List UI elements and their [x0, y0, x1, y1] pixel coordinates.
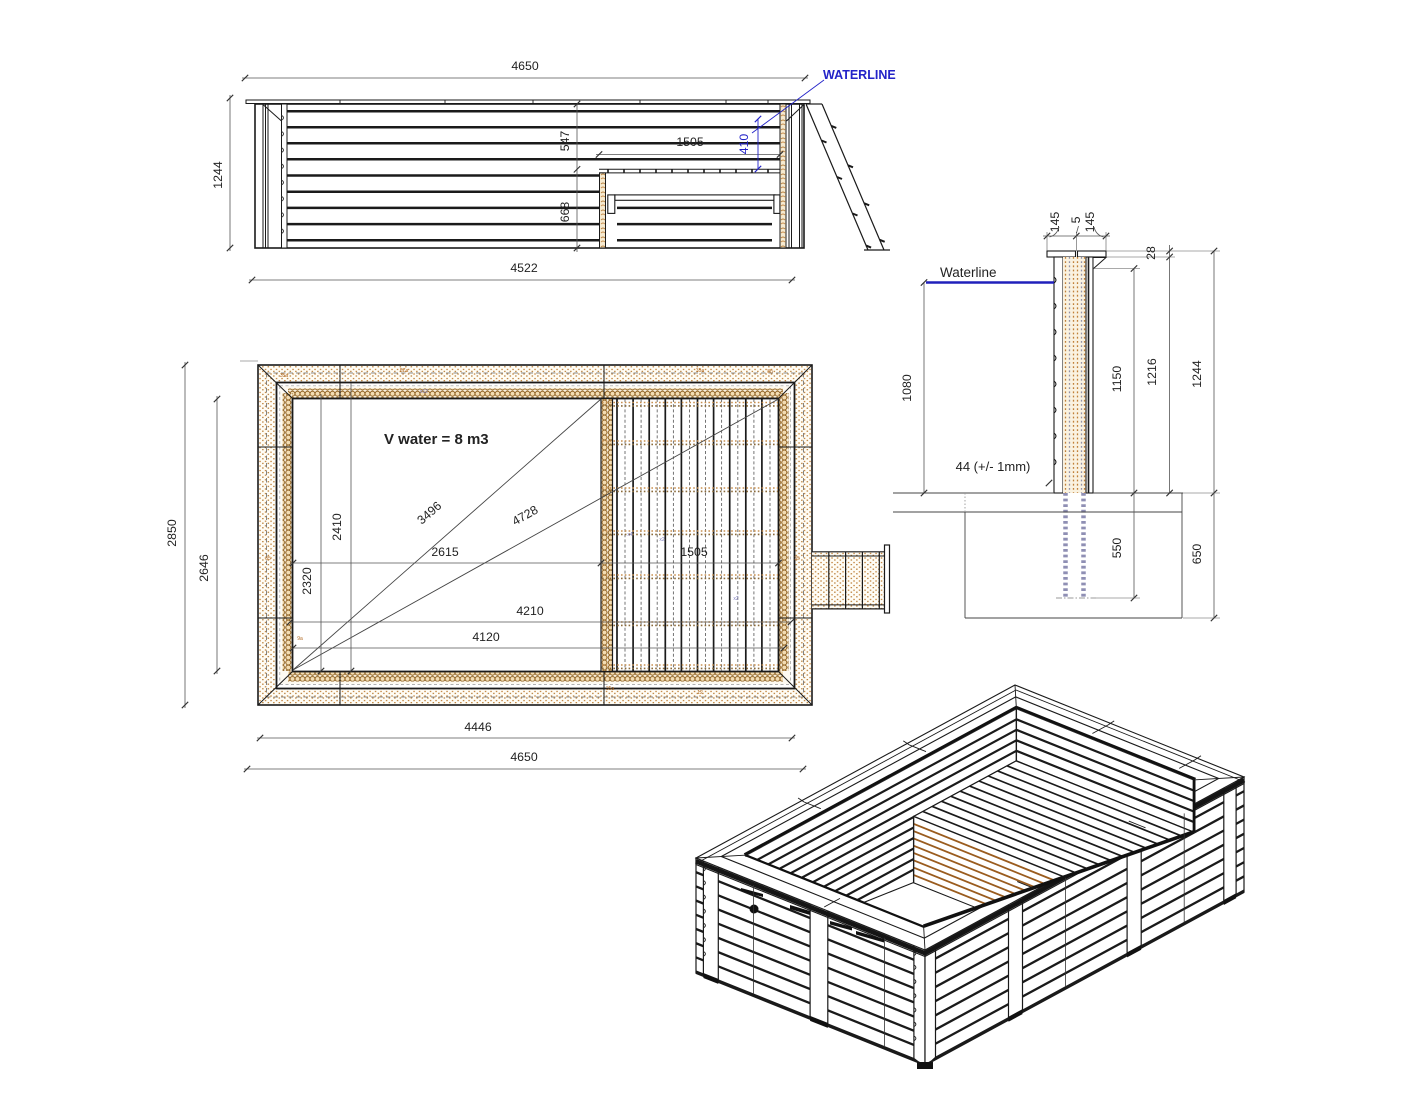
svg-text:35a: 35a — [606, 686, 615, 692]
svg-text:5: 5 — [1069, 216, 1083, 223]
svg-text:1244: 1244 — [211, 161, 225, 189]
svg-text:1244: 1244 — [1190, 360, 1204, 388]
svg-text:1505: 1505 — [676, 135, 704, 149]
svg-text:35: 35 — [794, 556, 800, 562]
svg-text:4650: 4650 — [511, 59, 539, 73]
svg-text:35a: 35a — [280, 373, 289, 379]
svg-text:28: 28 — [1144, 246, 1158, 260]
svg-text:550: 550 — [1110, 538, 1124, 559]
svg-text:2410: 2410 — [330, 513, 344, 541]
svg-text:WATERLINE: WATERLINE — [823, 68, 896, 82]
svg-text:547: 547 — [558, 131, 572, 152]
svg-text:4446: 4446 — [464, 720, 492, 734]
svg-text:4522: 4522 — [510, 261, 538, 275]
svg-text:1080: 1080 — [900, 374, 914, 402]
svg-text:8b: 8b — [767, 369, 773, 375]
svg-text:x12: x12 — [420, 389, 428, 395]
svg-text:1216: 1216 — [1145, 358, 1159, 386]
svg-text:2615: 2615 — [431, 545, 459, 559]
svg-text:4210: 4210 — [516, 604, 544, 618]
svg-text:2850: 2850 — [165, 519, 179, 547]
svg-text:V water = 8 m3: V water = 8 m3 — [384, 431, 489, 448]
svg-text:2320: 2320 — [300, 567, 314, 595]
svg-text:9a: 9a — [297, 636, 303, 642]
svg-text:4120: 4120 — [472, 630, 500, 644]
svg-text:35a: 35a — [696, 368, 705, 374]
svg-text:668: 668 — [558, 202, 572, 223]
svg-text:x2: x2 — [733, 596, 739, 602]
svg-text:8Za: 8Za — [400, 368, 409, 374]
svg-text:Waterline: Waterline — [940, 265, 997, 280]
svg-text:x2: x2 — [659, 537, 665, 543]
svg-text:1150: 1150 — [1110, 366, 1124, 393]
svg-text:35: 35 — [265, 556, 271, 562]
svg-text:2646: 2646 — [197, 554, 211, 582]
svg-text:145: 145 — [1048, 212, 1062, 233]
svg-text:410: 410 — [737, 134, 751, 155]
svg-text:650: 650 — [1190, 544, 1204, 565]
svg-text:12: 12 — [697, 690, 703, 696]
svg-text:x4: x4 — [627, 532, 633, 538]
svg-text:4650: 4650 — [510, 750, 538, 764]
svg-text:1505: 1505 — [680, 545, 708, 559]
svg-text:44 (+/- 1mm): 44 (+/- 1mm) — [956, 459, 1031, 474]
